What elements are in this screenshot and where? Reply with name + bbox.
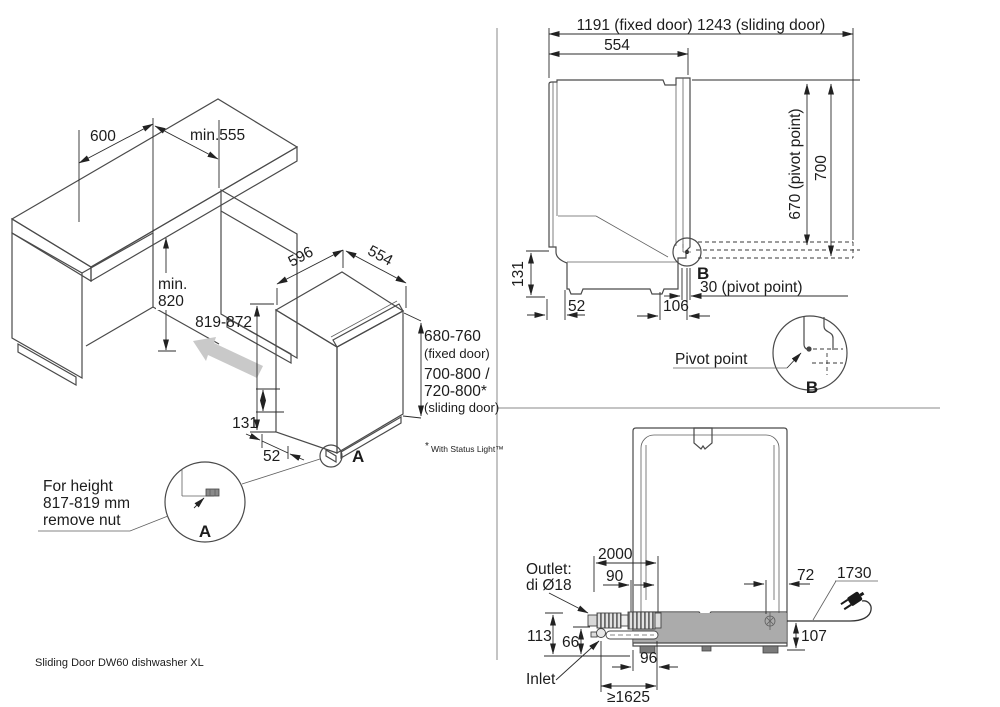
detail-a-note-1: For height (43, 478, 113, 495)
outlet-label-1: Outlet: (526, 561, 572, 578)
dw-sliding-door-label-1: 700-800 / (424, 366, 490, 383)
niche-height-label-1: min. (158, 276, 187, 293)
cord-length-label: 1730 (837, 565, 872, 582)
inlet-side-label: 96 (640, 650, 657, 667)
niche-depth-label: min.555 (190, 127, 245, 144)
dw-door-height-dims: 680-760 (fixed door) 700-800 / 720-800* … (403, 313, 504, 454)
rear-feet (640, 646, 778, 653)
detail-a-ref-label: A (352, 447, 364, 466)
dishwasher-isometric: 596 554 819-872 131 52 (38, 242, 504, 542)
niche-depth-dim: min.555 (155, 120, 245, 188)
inlet-label: Inlet (526, 671, 556, 688)
detail-b-callout: Pivot point B (673, 316, 847, 397)
detail-a-note-2: 817-819 mm (43, 495, 130, 512)
rear-view: 2000 90 72 1730 107 113 (526, 428, 878, 706)
niche-height-label-2: 820 (158, 293, 184, 310)
cord-length-dim: 1730 (813, 565, 878, 620)
outlet-height-label: 113 (527, 628, 552, 645)
side-profile-view: 1191 (fixed door) 1243 (sliding door) 55… (510, 17, 860, 397)
pivot-detail-ref-label: B (697, 264, 709, 283)
drain-length-label: 2000 (598, 546, 633, 563)
rear-top-notch (694, 428, 712, 449)
power-cord (787, 589, 871, 621)
side-pivot-height-label: 670 (pivot point) (787, 108, 804, 219)
side-pivot-inset-dim: 30 (pivot point) B (664, 264, 848, 300)
outlet-height-dim: 113 (527, 613, 563, 654)
side-plinth-dim: 131 (510, 251, 549, 297)
inlet-height-dim: 66 (562, 627, 590, 654)
drain-side-label: 90 (606, 568, 624, 585)
side-body-depth-label: 554 (604, 37, 630, 54)
open-door-dashed-outline (696, 242, 860, 258)
niche-width-dim: 600 (79, 118, 153, 233)
dw-recess-label: 52 (263, 448, 280, 465)
side-door-height-label: 700 (813, 155, 830, 181)
dw-fixed-door-note: (fixed door) (424, 346, 490, 361)
dw-plinth-label: 131 (232, 415, 258, 432)
dw-sliding-door-label-2: 720-800* (424, 383, 487, 400)
pivot-point-label: Pivot point (675, 351, 748, 368)
diagram-caption: Sliding Door DW60 dishwasher XL (35, 657, 204, 669)
detail-a-label: A (199, 522, 211, 541)
outlet-label-2: di Ø18 (526, 577, 572, 594)
side-total-depth-label: 1191 (fixed door) 1243 (sliding door) (577, 17, 826, 34)
side-pivot-depth-label: 106 (663, 298, 689, 315)
dw-depth-dim: 554 (346, 242, 406, 308)
side-body-depth-dim: 554 (549, 37, 688, 75)
side-rear-inset-label: 52 (568, 298, 585, 315)
dw-sliding-door-note: (sliding door) (424, 400, 499, 415)
inlet-length-label: ≥1625 (607, 689, 650, 706)
footnote-star: * (425, 441, 429, 452)
niche-height-dim: min. 820 (156, 238, 189, 351)
cord-height-dim: 107 (796, 623, 827, 648)
power-plug-icon (840, 589, 866, 611)
side-pivot-inset-label: 30 (pivot point) (700, 279, 803, 296)
side-pivot-height-dim: 670 (pivot point) 700 (787, 84, 831, 256)
footnote-status-light: With Status Light™ (431, 444, 504, 454)
dw-depth-label: 554 (365, 242, 396, 269)
niche-width-label: 600 (90, 128, 116, 145)
dw-fixed-door-label: 680-760 (424, 328, 481, 345)
inlet-height-label: 66 (562, 634, 579, 651)
detail-a-callout: A A For height 817-819 mm remove nut (38, 445, 364, 542)
insertion-direction-arrow-icon (193, 337, 263, 378)
drain-hose (588, 612, 661, 629)
dw-height-label: 819-872 (195, 314, 252, 331)
detail-a-note-3: remove nut (43, 512, 121, 529)
cord-side-label: 72 (797, 567, 814, 584)
drain-length-dim: 2000 (594, 546, 658, 612)
cord-height-label: 107 (801, 628, 827, 645)
side-plinth-label: 131 (510, 261, 527, 287)
dw-height-dim: 819-872 (195, 304, 276, 432)
niche-isometric-view: 600 min.555 min. 820 (12, 99, 297, 385)
dw-width-dim: 596 (277, 243, 343, 305)
detail-b-label: B (806, 378, 818, 397)
installation-diagram: 600 min.555 min. 820 596 (0, 0, 1000, 707)
outlet-callout: Outlet: di Ø18 (526, 561, 588, 613)
